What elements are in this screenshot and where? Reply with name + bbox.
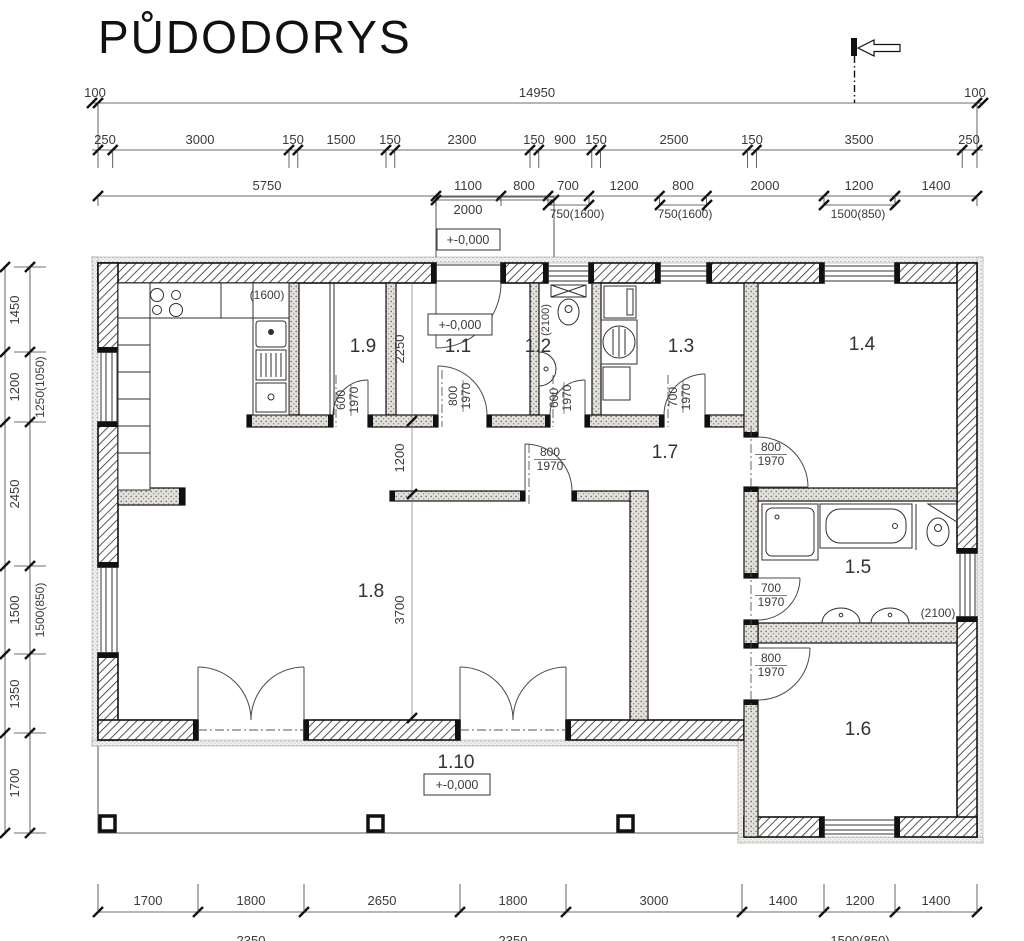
annotation-label: (2100) xyxy=(540,304,552,336)
kitchen-fixtures xyxy=(118,283,334,490)
room-label: 1.2 xyxy=(525,336,551,357)
level-label: +-0,000 xyxy=(447,233,490,247)
room-label: 1.4 xyxy=(849,334,876,355)
window-top-wc xyxy=(548,266,589,281)
level-label: +-0,000 xyxy=(436,778,479,792)
dim-label: 3500 xyxy=(845,132,874,147)
room-label: 1.1 xyxy=(445,336,471,357)
dim-label: 750(1600) xyxy=(550,207,605,221)
window-left-living xyxy=(101,567,117,653)
level-label: +-0,000 xyxy=(439,318,482,332)
dim-label: 900 xyxy=(554,132,576,147)
entrance-threshold xyxy=(436,265,501,281)
boiler-icon xyxy=(604,286,636,318)
dim-label: 1800 xyxy=(237,893,266,908)
dim-label: 1250(1050) xyxy=(33,356,47,417)
dim-label: 1200 xyxy=(7,373,22,402)
utility-fixtures xyxy=(601,286,637,400)
dim-label: 2650 xyxy=(368,893,397,908)
room-label: 1.8 xyxy=(358,581,384,602)
dim-label: 100 xyxy=(964,85,986,100)
dim-label: 2500 xyxy=(660,132,689,147)
room-label: 1.5 xyxy=(845,557,871,578)
dim-label: 1200 xyxy=(845,178,874,193)
dim-label: 150 xyxy=(585,132,607,147)
dim-label: 150 xyxy=(523,132,545,147)
window-bottom-bedroom xyxy=(824,820,895,834)
room-label: 1.10 xyxy=(438,752,475,773)
dim-label: 2300 xyxy=(448,132,477,147)
interior-walls xyxy=(118,283,957,837)
dim-label: 1700 xyxy=(7,769,22,798)
shower-icon xyxy=(762,504,818,560)
dim-label: 3000 xyxy=(186,132,215,147)
door-size-label: 1970 xyxy=(347,386,361,413)
dim-label: 150 xyxy=(741,132,763,147)
toilet-icon xyxy=(558,299,579,325)
dim-label: 2350 xyxy=(237,933,266,941)
door-size-label: 700 xyxy=(666,387,680,407)
room-label: 1.3 xyxy=(668,336,694,357)
section-arrow-icon xyxy=(858,40,900,56)
dim-label: 1200 xyxy=(846,893,875,908)
dim-label: 3000 xyxy=(640,893,669,908)
dim-label: 5750 xyxy=(253,178,282,193)
door-size-label: 800 xyxy=(540,445,560,459)
toilet-bath-icon xyxy=(927,504,957,546)
door-size-label: 700 xyxy=(761,581,781,595)
dim-label: 1400 xyxy=(922,893,951,908)
window-left-kitchen xyxy=(101,352,117,422)
bathtub-icon xyxy=(820,504,912,548)
floor-plan-drawing: 1001495010025030001501500150230015090015… xyxy=(0,0,1024,941)
dim-label: 1400 xyxy=(922,178,951,193)
window-top-utility xyxy=(660,266,707,281)
door-size-label: 1970 xyxy=(758,595,785,609)
french-door-right xyxy=(460,667,566,720)
door-size-label: 1970 xyxy=(679,383,693,410)
dim-label: 14950 xyxy=(519,85,555,100)
dish-rack-icon xyxy=(256,350,286,380)
dim-label: 1500(850) xyxy=(33,583,47,638)
door-size-label: 1970 xyxy=(758,665,785,679)
dim-label: 150 xyxy=(282,132,304,147)
door-size-label: 800 xyxy=(761,440,781,454)
dim-label: 1100 xyxy=(454,178,482,193)
door-size-label: 1970 xyxy=(459,382,473,409)
dim-label: 1350 xyxy=(7,680,22,709)
dim-label: 1800 xyxy=(499,893,528,908)
dim-label: 1200 xyxy=(610,178,639,193)
washbasin-icon xyxy=(822,608,860,623)
cistern-icon xyxy=(551,285,586,297)
dim-label: 1500 xyxy=(7,596,22,625)
annotation-label: (1600) xyxy=(250,288,285,302)
dim-label: 1200 xyxy=(392,444,407,473)
dim-label: 2000 xyxy=(454,202,483,217)
window-right-bathroom xyxy=(960,553,975,617)
dim-label: 2350 xyxy=(499,933,528,941)
french-door-left xyxy=(198,667,304,720)
door-size-label: 600 xyxy=(334,390,348,410)
room-label: 1.6 xyxy=(845,719,871,740)
washing-machine-icon xyxy=(601,320,637,364)
dim-label: 250 xyxy=(958,132,980,147)
room-label: 1.9 xyxy=(350,336,376,357)
dim-label: 1700 xyxy=(134,893,163,908)
dim-label: 250 xyxy=(94,132,116,147)
terrace xyxy=(98,746,738,833)
section-marker xyxy=(851,38,900,103)
washbasin-icon xyxy=(871,608,909,623)
dimension-layer: 1001495010025030001501500150230015090015… xyxy=(0,85,988,941)
dim-label: 2250 xyxy=(392,335,407,364)
dim-label: 800 xyxy=(672,178,694,193)
door-size-label: 1970 xyxy=(560,384,574,411)
dim-label: 700 xyxy=(557,178,579,193)
dim-label: 2450 xyxy=(7,480,22,509)
door-size-label: 1970 xyxy=(537,459,564,473)
dim-label: 1500 xyxy=(327,132,356,147)
annotation-label: (2100) xyxy=(921,606,956,620)
door-size-label: 800 xyxy=(761,651,781,665)
terrace-posts xyxy=(100,816,633,831)
dim-label: 3700 xyxy=(392,596,407,625)
dim-label: 1500(850) xyxy=(831,207,886,221)
dim-label: 1400 xyxy=(769,893,798,908)
floor-plan-sheet: PŮDODORYS xyxy=(0,0,1024,941)
room-label: 1.7 xyxy=(652,442,678,463)
dim-label: 800 xyxy=(513,178,535,193)
door-size-label: 600 xyxy=(547,388,561,408)
window-top-bedroom xyxy=(824,266,895,281)
sink-icon xyxy=(256,321,286,347)
dim-label: 750(1600) xyxy=(658,207,713,221)
drawing-title: PŮDODORYS xyxy=(98,10,412,64)
dim-label: 1500(850) xyxy=(830,933,889,941)
door-size-label: 1970 xyxy=(758,454,785,468)
door-size-label: 800 xyxy=(446,386,460,406)
dim-label: 150 xyxy=(379,132,401,147)
dim-label: 1450 xyxy=(7,296,22,325)
dim-label: 100 xyxy=(84,85,106,100)
dim-label: 2000 xyxy=(751,178,780,193)
